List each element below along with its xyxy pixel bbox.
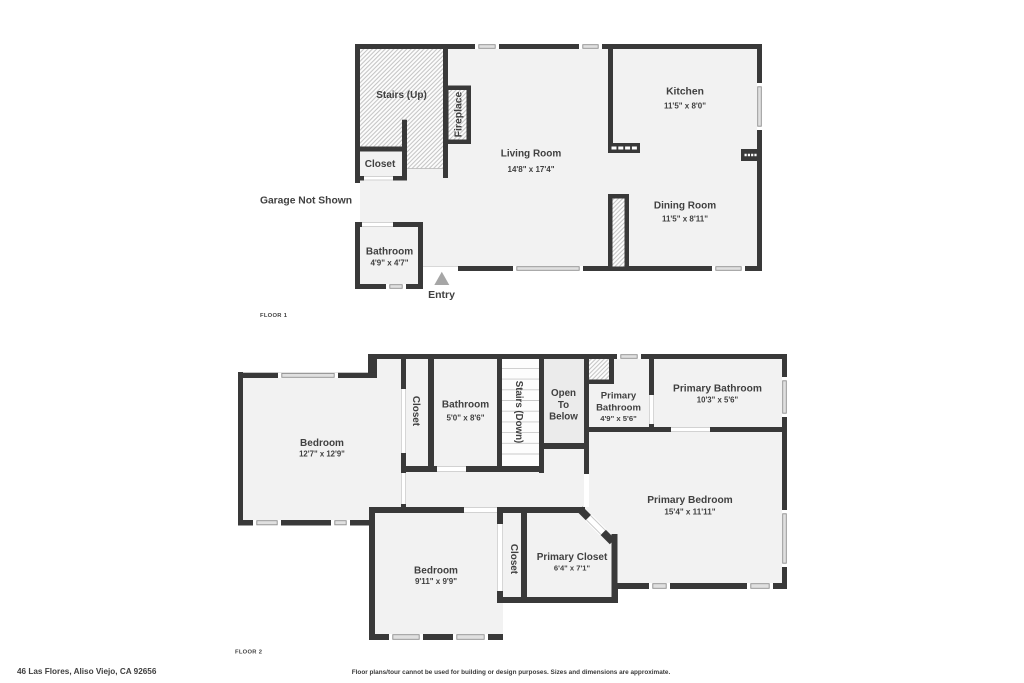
svg-text:Bathroom: Bathroom	[366, 247, 413, 258]
svg-text:12'7" x 12'9": 12'7" x 12'9"	[299, 450, 345, 459]
svg-text:Dining Room: Dining Room	[654, 201, 716, 212]
svg-text:Primary Bedroom: Primary Bedroom	[647, 495, 733, 506]
svg-text:Stairs (Down): Stairs (Down)	[513, 381, 524, 443]
svg-text:Closet: Closet	[365, 159, 396, 170]
svg-text:9'11" x 9'9": 9'11" x 9'9"	[415, 577, 457, 586]
svg-text:5'0" x 8'6": 5'0" x 8'6"	[446, 413, 484, 422]
svg-text:4'9" x 5'6": 4'9" x 5'6"	[600, 414, 637, 423]
svg-text:Floor plans/tour cannot be use: Floor plans/tour cannot be used for buil…	[352, 669, 671, 676]
svg-text:Garage Not Shown: Garage Not Shown	[260, 196, 352, 207]
svg-text:FLOOR 1: FLOOR 1	[260, 313, 288, 319]
svg-text:15'4" x 11'11": 15'4" x 11'11"	[664, 508, 715, 517]
svg-text:11'5" x 8'0": 11'5" x 8'0"	[664, 101, 706, 110]
svg-text:6'4" x 7'1": 6'4" x 7'1"	[554, 564, 591, 573]
svg-text:Primary Closet: Primary Closet	[537, 552, 608, 563]
svg-text:Closet: Closet	[410, 396, 421, 427]
svg-text:14'8" x 17'4": 14'8" x 17'4"	[508, 165, 555, 174]
svg-text:Entry: Entry	[428, 289, 455, 301]
svg-text:4'9" x 4'7": 4'9" x 4'7"	[370, 258, 408, 267]
svg-text:Living Room: Living Room	[501, 149, 562, 160]
svg-text:Primary Bathroom: Primary Bathroom	[673, 384, 762, 395]
svg-text:10'3" x 5'6": 10'3" x 5'6"	[697, 396, 739, 405]
svg-text:Bedroom: Bedroom	[414, 566, 458, 577]
svg-text:Kitchen: Kitchen	[666, 87, 704, 98]
svg-text:To: To	[558, 400, 569, 411]
svg-text:Fireplace: Fireplace	[454, 91, 465, 137]
svg-text:Bedroom: Bedroom	[300, 438, 344, 449]
svg-text:Stairs (Up): Stairs (Up)	[376, 90, 427, 101]
svg-text:FLOOR 2: FLOOR 2	[235, 650, 262, 656]
svg-text:Primary: Primary	[601, 390, 637, 401]
svg-text:46 Las Flores, Aliso Viejo, CA: 46 Las Flores, Aliso Viejo, CA 92656	[17, 667, 157, 676]
svg-text:11'5" x 8'11": 11'5" x 8'11"	[662, 214, 708, 223]
svg-text:Closet: Closet	[508, 544, 519, 575]
svg-text:Open: Open	[551, 388, 576, 399]
svg-text:Bathroom: Bathroom	[596, 402, 641, 413]
svg-text:Below: Below	[549, 412, 578, 423]
svg-text:Bathroom: Bathroom	[442, 400, 489, 411]
